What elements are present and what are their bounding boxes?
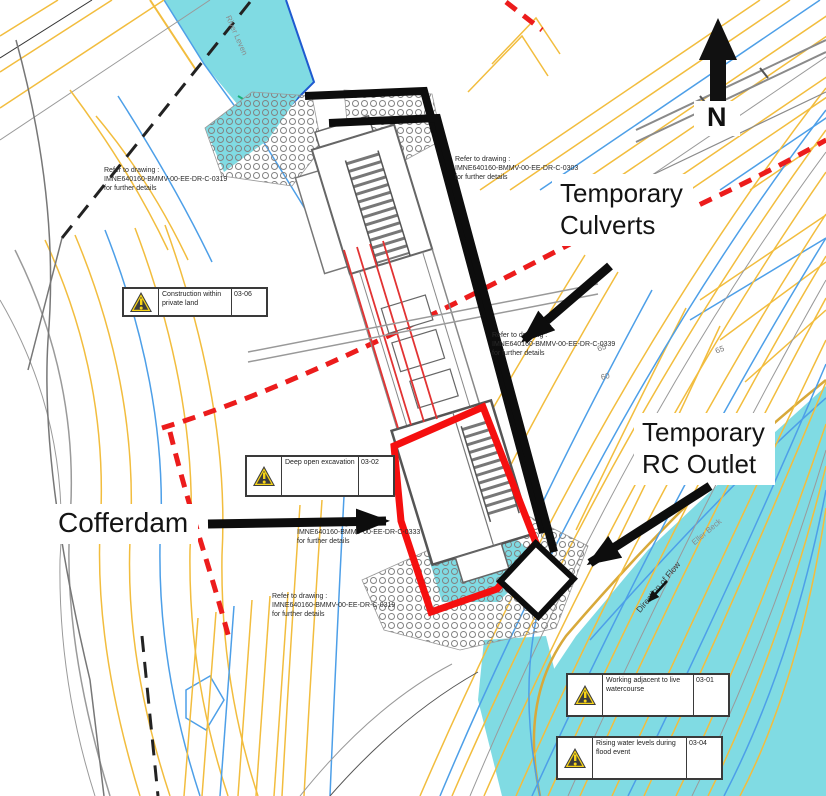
callout-temporary-rc-outlet: Temporary RC Outlet [634, 413, 775, 485]
warning-icon [247, 457, 282, 495]
site-plan-page: Refer to drawing : IMNE640160-BMMV-00-EE… [0, 0, 826, 796]
refer-note: Refer to drawing : IMNE640160-BMMV-00-EE… [104, 166, 246, 193]
refer-note: Refer to drawing : IMNE640160-BMMV-00-EE… [272, 592, 414, 619]
hazard-box-private-land: Construction within private land 03-06 [122, 287, 268, 317]
warning-icon [124, 289, 159, 315]
north-label: N [694, 101, 740, 136]
refer-note: Refer to drawing : IMNE640160-BMMV-00-EE… [492, 331, 634, 358]
hazard-box-deep-excavation: Deep open excavation 03-02 [245, 455, 395, 497]
refer-note: Refer to drawing : IMNE640160-BMMV-00-EE… [297, 519, 439, 546]
callout-cofferdam: Cofferdam [50, 504, 198, 544]
warning-icon [568, 675, 603, 715]
hazard-box-rising-water: Rising water levels during flood event 0… [556, 736, 723, 780]
warning-icon [558, 738, 593, 778]
callout-temporary-culverts: Temporary Culverts [552, 174, 693, 246]
hazard-box-live-watercourse: Working adjacent to live watercourse 03-… [566, 673, 730, 717]
contour-elevation-label: 60 [600, 371, 611, 382]
